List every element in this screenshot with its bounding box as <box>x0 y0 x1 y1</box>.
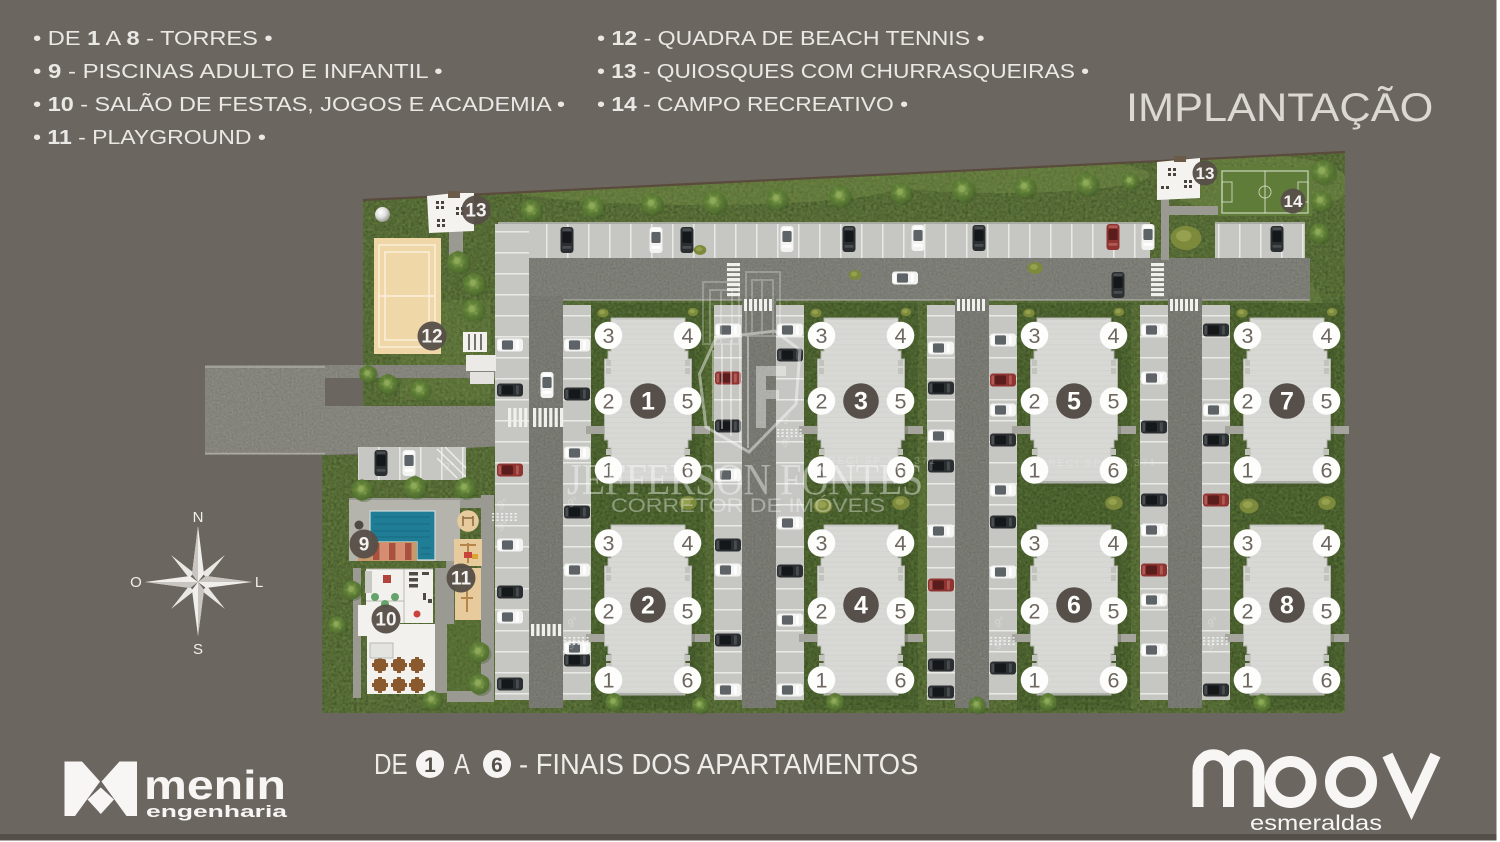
svg-text:10: 10 <box>375 610 396 631</box>
svg-text:5: 5 <box>1067 388 1081 416</box>
svg-text:esmeraldas: esmeraldas <box>1250 811 1382 835</box>
svg-text:5: 5 <box>682 390 694 414</box>
svg-text:9°: 9° <box>443 461 454 473</box>
svg-text:14: 14 <box>1284 192 1303 211</box>
svg-text:6: 6 <box>1321 459 1333 483</box>
svg-text:1: 1 <box>1029 669 1041 693</box>
svg-text:N: N <box>193 509 204 526</box>
svg-text:1: 1 <box>1242 669 1254 693</box>
svg-text:5: 5 <box>1108 600 1120 624</box>
svg-text:• 9 - PISCINAS ADULTO E INFANT: • 9 - PISCINAS ADULTO E INFANTIL • <box>33 60 443 83</box>
svg-text:IMPLANTAÇÃO: IMPLANTAÇÃO <box>1126 85 1433 130</box>
svg-text:• 11 - PLAYGROUND •: • 11 - PLAYGROUND • <box>33 126 266 149</box>
svg-text:4: 4 <box>682 324 694 348</box>
svg-text:3: 3 <box>816 324 828 348</box>
svg-text:• DE 1 A 8 - TORRES •: • DE 1 A 8 - TORRES • <box>33 27 273 50</box>
svg-text:11: 11 <box>451 569 472 590</box>
svg-text:CORRETOR DE IMÓVEIS: CORRETOR DE IMÓVEIS <box>611 495 885 517</box>
svg-text:2: 2 <box>1242 390 1254 414</box>
svg-text:4: 4 <box>1108 532 1120 556</box>
svg-text:3: 3 <box>1242 532 1254 556</box>
svg-text:- FINAIS DOS APARTAMENTOS: - FINAIS DOS APARTAMENTOS <box>519 748 918 781</box>
svg-text:2: 2 <box>1029 390 1041 414</box>
svg-text:1: 1 <box>816 669 828 693</box>
svg-text:S: S <box>193 641 203 658</box>
svg-text:1: 1 <box>424 754 436 777</box>
svg-text:9: 9 <box>359 535 370 556</box>
svg-text:2: 2 <box>603 600 615 624</box>
svg-text:4: 4 <box>854 592 868 620</box>
svg-text:5: 5 <box>1321 390 1333 414</box>
svg-text:2: 2 <box>603 390 615 414</box>
svg-text:13: 13 <box>465 201 486 222</box>
svg-text:2: 2 <box>1029 600 1041 624</box>
svg-text:7: 7 <box>1280 388 1294 416</box>
svg-text:4: 4 <box>895 532 907 556</box>
svg-text:3: 3 <box>1242 324 1254 348</box>
svg-text:2: 2 <box>641 592 655 620</box>
svg-text:5: 5 <box>1321 600 1333 624</box>
svg-text:6: 6 <box>1108 669 1120 693</box>
svg-text:4: 4 <box>895 324 907 348</box>
svg-text:A: A <box>454 748 470 781</box>
svg-text:CRECI SP 164.371: CRECI SP 164.371 <box>1039 458 1157 469</box>
svg-text:3: 3 <box>1029 324 1041 348</box>
svg-text:4: 4 <box>1108 324 1120 348</box>
svg-text:6: 6 <box>895 669 907 693</box>
svg-text:3: 3 <box>603 532 615 556</box>
svg-text:6: 6 <box>491 754 503 777</box>
svg-text:3: 3 <box>854 388 868 416</box>
svg-text:2: 2 <box>1242 600 1254 624</box>
svg-text:4: 4 <box>1321 324 1333 348</box>
svg-text:engenharia: engenharia <box>146 802 288 821</box>
svg-text:DE: DE <box>374 748 408 781</box>
svg-text:5: 5 <box>895 600 907 624</box>
svg-text:CRECI SP 164.371: CRECI SP 164.371 <box>819 456 937 467</box>
svg-text:3: 3 <box>603 324 615 348</box>
svg-text:O: O <box>130 574 142 591</box>
svg-text:6: 6 <box>1067 592 1081 620</box>
svg-text:4: 4 <box>682 532 694 556</box>
svg-text:L: L <box>255 574 263 591</box>
svg-text:• 12 - QUADRA DE BEACH TENNIS: • 12 - QUADRA DE BEACH TENNIS • <box>597 27 985 50</box>
svg-text:2: 2 <box>816 600 828 624</box>
svg-text:2: 2 <box>816 390 828 414</box>
svg-text:• 14 - CAMPO RECREATIVO •: • 14 - CAMPO RECREATIVO • <box>597 93 908 116</box>
svg-text:1: 1 <box>1242 459 1254 483</box>
svg-text:13: 13 <box>1196 164 1215 183</box>
svg-text:8: 8 <box>1280 592 1294 620</box>
svg-text:4: 4 <box>1321 532 1333 556</box>
svg-text:3: 3 <box>1029 532 1041 556</box>
svg-text:• 10 - SALÃO DE FESTAS, JOGOS: • 10 - SALÃO DE FESTAS, JOGOS E ACADEMIA… <box>33 93 565 116</box>
svg-text:5: 5 <box>1108 390 1120 414</box>
svg-text:12: 12 <box>421 327 442 348</box>
svg-text:1: 1 <box>603 669 615 693</box>
svg-text:5: 5 <box>895 390 907 414</box>
svg-text:6: 6 <box>1321 669 1333 693</box>
svg-text:• 13 - QUIOSQUES COM CHURRASQU: • 13 - QUIOSQUES COM CHURRASQUEIRAS • <box>597 60 1089 83</box>
svg-text:1: 1 <box>641 388 655 416</box>
svg-text:5: 5 <box>682 600 694 624</box>
svg-text:6: 6 <box>682 669 694 693</box>
svg-text:3: 3 <box>816 532 828 556</box>
